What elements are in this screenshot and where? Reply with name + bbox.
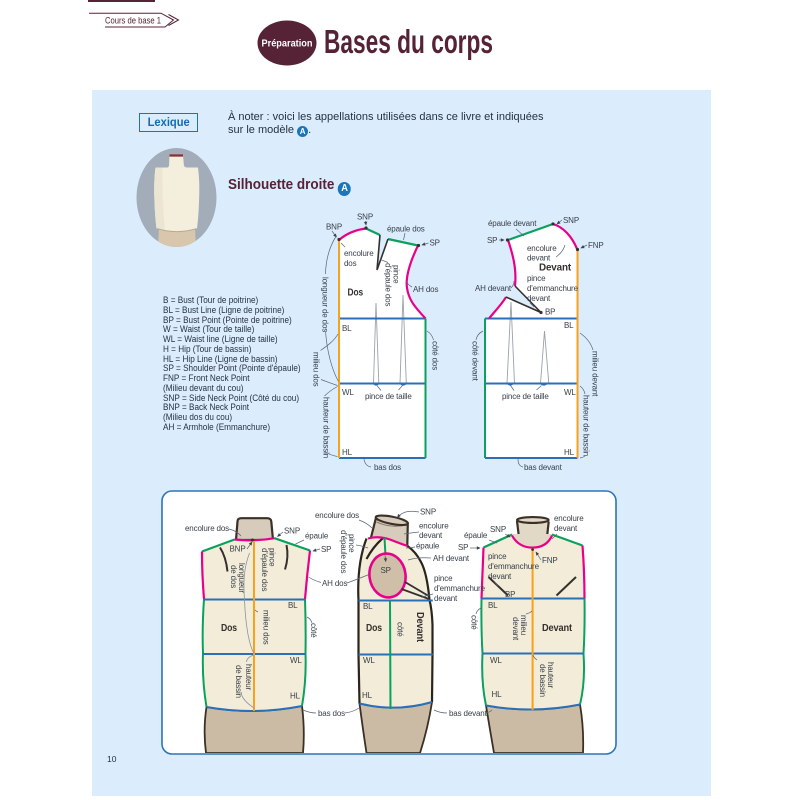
svg-text:d'épaule dos: d'épaule dos: [384, 263, 393, 306]
svg-text:bas devant: bas devant: [449, 709, 488, 718]
svg-text:HL: HL: [564, 448, 575, 457]
svg-text:de dos: de dos: [229, 565, 238, 588]
svg-text:SP: SP: [458, 543, 468, 552]
svg-text:BNP: BNP: [230, 545, 246, 554]
svg-text:Devant: Devant: [414, 612, 426, 643]
svg-text:SNP: SNP: [420, 508, 436, 517]
svg-text:BL: BL: [342, 324, 352, 333]
svg-text:côté devant: côté devant: [471, 341, 480, 382]
svg-text:HL: HL: [492, 690, 503, 699]
svg-text:hauteur de bassin: hauteur de bassin: [582, 395, 591, 456]
svg-text:HL: HL: [342, 448, 353, 457]
svg-text:d'emmanchure: d'emmanchure: [488, 562, 540, 571]
svg-text:côté dos: côté dos: [431, 341, 440, 370]
svg-text:encolure: encolure: [344, 249, 374, 258]
svg-text:devant: devant: [511, 617, 520, 641]
svg-text:hauteur de bassin: hauteur de bassin: [322, 397, 331, 458]
svg-text:dos: dos: [344, 259, 357, 268]
svg-text:encolure dos: encolure dos: [185, 524, 229, 533]
svg-text:Dos: Dos: [366, 622, 382, 634]
svg-text:SP: SP: [430, 239, 440, 248]
svg-text:épaule dos: épaule dos: [387, 225, 425, 234]
svg-text:devant: devant: [419, 531, 443, 540]
svg-text:encolure: encolure: [419, 522, 449, 531]
svg-text:longueur de dos: longueur de dos: [321, 277, 330, 332]
svg-text:AH devant: AH devant: [433, 554, 470, 563]
svg-text:d'épaule dos: d'épaule dos: [339, 530, 348, 573]
svg-text:pince: pince: [527, 274, 546, 283]
svg-text:devant: devant: [554, 524, 578, 533]
svg-text:BL: BL: [564, 321, 574, 330]
svg-text:Devant: Devant: [539, 262, 572, 274]
svg-text:Dos: Dos: [348, 287, 364, 299]
svg-text:BL: BL: [363, 602, 373, 611]
svg-text:WL: WL: [290, 656, 302, 665]
svg-text:milieu dos: milieu dos: [262, 610, 271, 645]
svg-text:BP: BP: [505, 590, 515, 599]
svg-text:BP: BP: [545, 308, 555, 317]
svg-text:pince de taille: pince de taille: [365, 392, 412, 401]
svg-text:pince de taille: pince de taille: [502, 392, 549, 401]
svg-text:côté: côté: [470, 615, 479, 630]
svg-text:devant: devant: [434, 594, 458, 603]
svg-text:d'épaule dos: d'épaule dos: [260, 548, 269, 591]
svg-text:côté: côté: [396, 622, 405, 637]
svg-text:SP: SP: [487, 236, 497, 245]
svg-text:côté: côté: [309, 623, 318, 638]
svg-text:WL: WL: [564, 388, 576, 397]
svg-text:milieu dos: milieu dos: [312, 352, 321, 387]
svg-text:HL: HL: [362, 691, 373, 700]
svg-text:d'emmanchure: d'emmanchure: [434, 584, 486, 593]
svg-text:épaule: épaule: [464, 531, 488, 540]
svg-text:épaule: épaule: [416, 542, 440, 551]
svg-text:WL: WL: [490, 656, 502, 665]
svg-text:encolure: encolure: [554, 514, 584, 523]
svg-text:encolure: encolure: [527, 244, 557, 253]
svg-text:AH dos: AH dos: [413, 285, 438, 294]
svg-text:SNP: SNP: [357, 213, 373, 222]
svg-text:BL: BL: [288, 601, 298, 610]
svg-text:WL: WL: [342, 388, 354, 397]
svg-text:bas dos: bas dos: [318, 709, 345, 718]
svg-text:devant: devant: [527, 294, 551, 303]
svg-text:épaule: épaule: [305, 532, 329, 541]
svg-text:pince: pince: [434, 574, 453, 583]
svg-text:d'emmanchure: d'emmanchure: [527, 284, 579, 293]
svg-text:AH dos: AH dos: [322, 579, 347, 588]
svg-text:milieu devant: milieu devant: [591, 351, 600, 397]
svg-text:HL: HL: [290, 692, 301, 701]
svg-text:AH devant: AH devant: [475, 284, 512, 293]
svg-text:de bassin: de bassin: [538, 664, 547, 697]
svg-text:de bassin: de bassin: [234, 665, 243, 698]
svg-text:Devant: Devant: [542, 622, 573, 634]
svg-text:bas devant: bas devant: [524, 463, 563, 472]
svg-text:SNP: SNP: [284, 527, 300, 536]
svg-text:WL: WL: [363, 656, 375, 665]
svg-text:SP: SP: [321, 545, 331, 554]
svg-text:FNP: FNP: [588, 241, 604, 250]
svg-text:pince: pince: [488, 552, 507, 561]
svg-text:encolure dos: encolure dos: [315, 511, 359, 520]
svg-text:SP: SP: [381, 566, 391, 575]
svg-text:Dos: Dos: [221, 622, 237, 634]
svg-text:BL: BL: [488, 601, 498, 610]
svg-text:bas dos: bas dos: [374, 463, 401, 472]
svg-text:hauteur: hauteur: [244, 664, 253, 691]
svg-text:épaule devant: épaule devant: [488, 219, 537, 228]
svg-text:devant: devant: [488, 572, 512, 581]
svg-text:BNP: BNP: [326, 223, 342, 232]
svg-text:FNP: FNP: [542, 556, 558, 565]
svg-text:SNP: SNP: [490, 525, 506, 534]
svg-text:SNP: SNP: [563, 216, 579, 225]
